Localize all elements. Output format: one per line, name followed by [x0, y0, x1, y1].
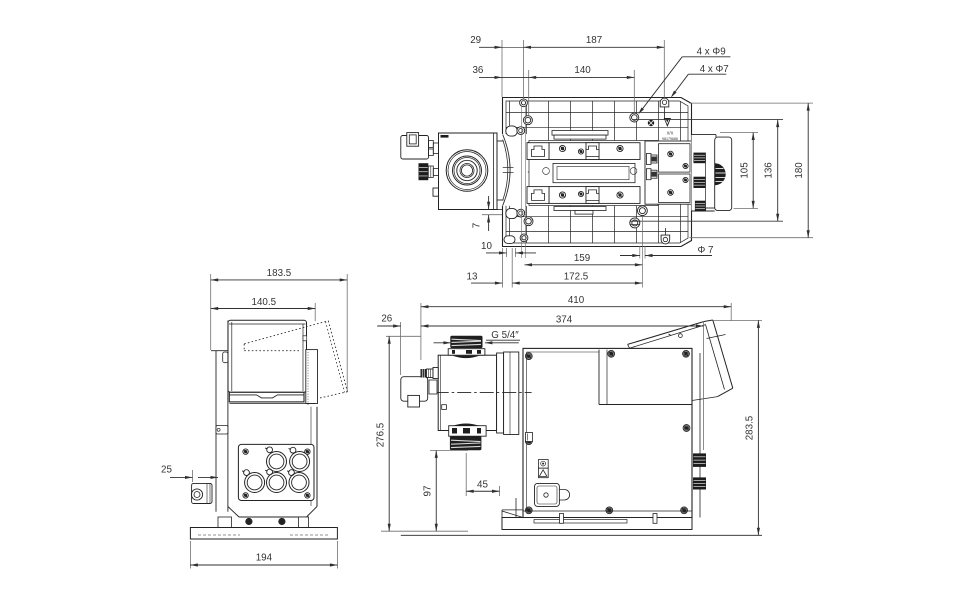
svg-text:X/X: X/X: [667, 131, 674, 136]
svg-text:G 5/4″: G 5/4″: [491, 330, 519, 341]
svg-text:194: 194: [256, 553, 273, 564]
svg-text:140.5: 140.5: [252, 297, 277, 308]
svg-text:187: 187: [586, 35, 602, 46]
svg-text:283.5: 283.5: [744, 415, 755, 440]
svg-text:29: 29: [470, 35, 481, 46]
svg-text:105: 105: [740, 162, 751, 179]
svg-text:Φ 7: Φ 7: [698, 245, 714, 256]
svg-text:97: 97: [422, 486, 433, 497]
svg-text:7: 7: [472, 223, 483, 228]
svg-text:276.5: 276.5: [375, 422, 386, 447]
svg-text:13: 13: [467, 271, 478, 282]
svg-text:4 x Φ7: 4 x Φ7: [700, 64, 729, 75]
svg-text:140: 140: [574, 65, 591, 76]
svg-text:26: 26: [381, 313, 392, 324]
svg-text:98179686: 98179686: [662, 137, 678, 141]
svg-text:183.5: 183.5: [267, 268, 292, 279]
svg-text:36: 36: [472, 65, 483, 76]
svg-text:374: 374: [556, 314, 573, 325]
svg-text:45: 45: [477, 480, 488, 491]
svg-text:10: 10: [481, 241, 492, 252]
svg-text:159: 159: [574, 253, 590, 264]
svg-text:172.5: 172.5: [564, 271, 589, 282]
svg-text:25: 25: [161, 464, 172, 475]
svg-text:180: 180: [794, 162, 805, 179]
svg-text:136: 136: [764, 162, 775, 179]
svg-text:410: 410: [568, 295, 585, 306]
svg-text:4 x Φ9: 4 x Φ9: [697, 47, 726, 58]
